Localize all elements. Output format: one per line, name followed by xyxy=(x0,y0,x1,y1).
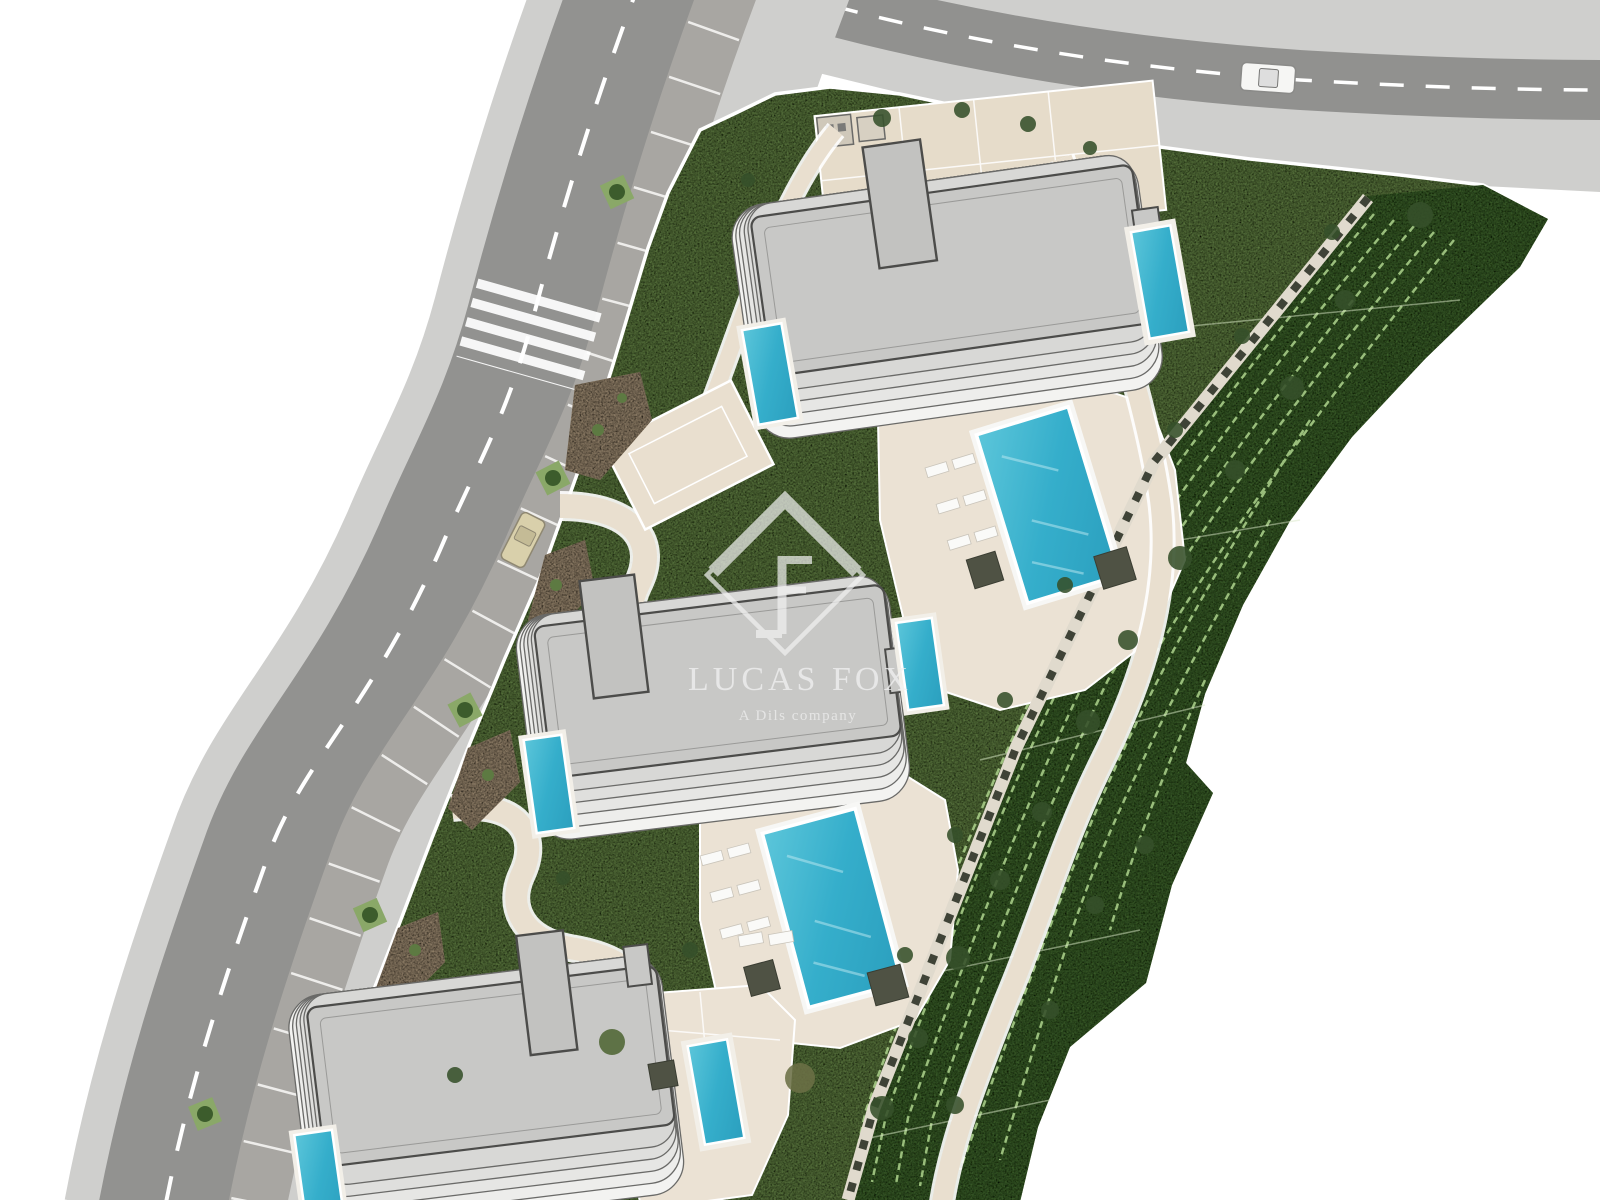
site-plan-image: LUCAS FOX A Dils company xyxy=(0,0,1600,1200)
building-3-notch xyxy=(623,944,652,987)
site-plan-canvas: LUCAS FOX A Dils company xyxy=(0,0,1600,1200)
car-white xyxy=(1240,62,1296,94)
watermark-brand: LUCAS FOX xyxy=(688,661,912,698)
watermark-tagline: A Dils company xyxy=(739,708,858,724)
